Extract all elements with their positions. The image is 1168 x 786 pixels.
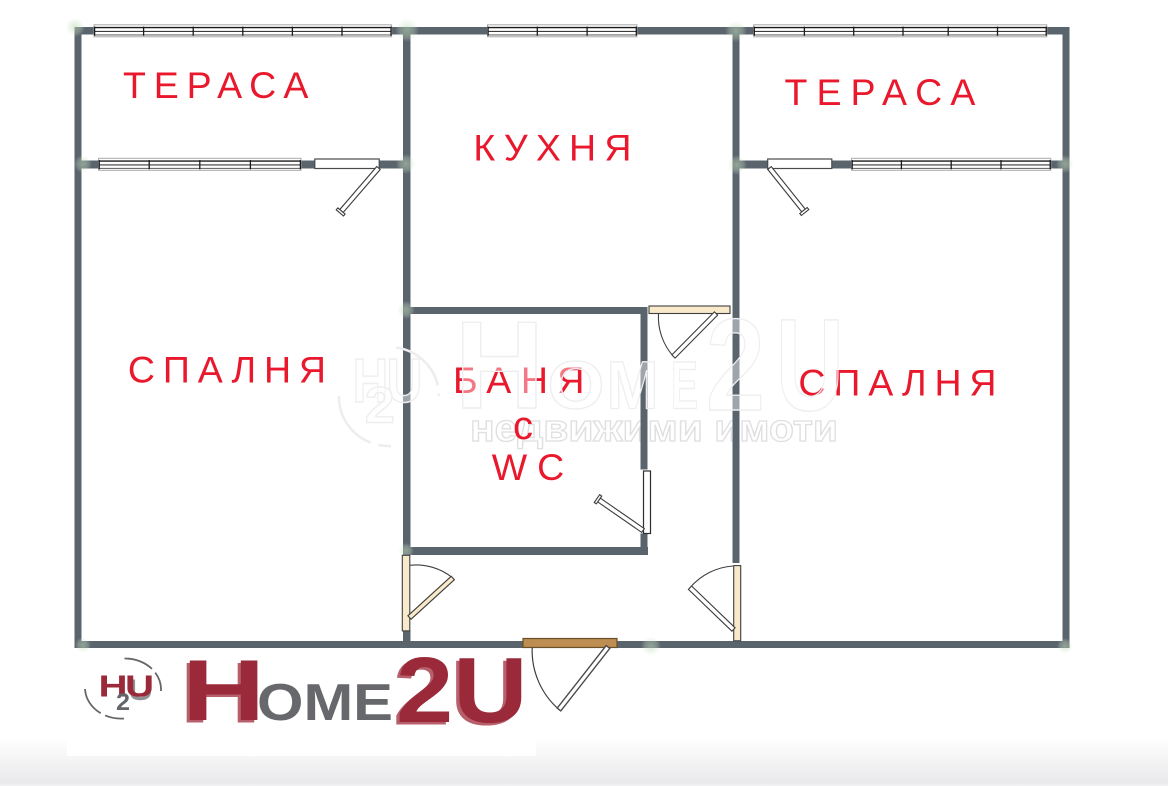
svg-text:M: M bbox=[607, 348, 659, 424]
svg-text:ТЕРАСА: ТЕРАСА bbox=[785, 71, 985, 113]
svg-text:2: 2 bbox=[116, 689, 130, 716]
svg-text:E: E bbox=[671, 348, 698, 424]
svg-text:2: 2 bbox=[706, 291, 765, 438]
svg-text:U: U bbox=[776, 291, 844, 438]
svg-text:H: H bbox=[182, 643, 265, 739]
svg-text:O: O bbox=[548, 348, 605, 424]
svg-text:H: H bbox=[454, 297, 544, 435]
svg-text:ТЕРАСА: ТЕРАСА bbox=[123, 64, 316, 106]
svg-text:СПАЛНЯ: СПАЛНЯ bbox=[128, 348, 334, 390]
svg-text:2U: 2U bbox=[396, 638, 528, 742]
svg-text:OME: OME bbox=[257, 673, 393, 731]
svg-text:КУХНЯ: КУХНЯ bbox=[473, 127, 639, 169]
svg-text:WC: WC bbox=[492, 446, 574, 488]
svg-text:2: 2 bbox=[365, 377, 395, 434]
